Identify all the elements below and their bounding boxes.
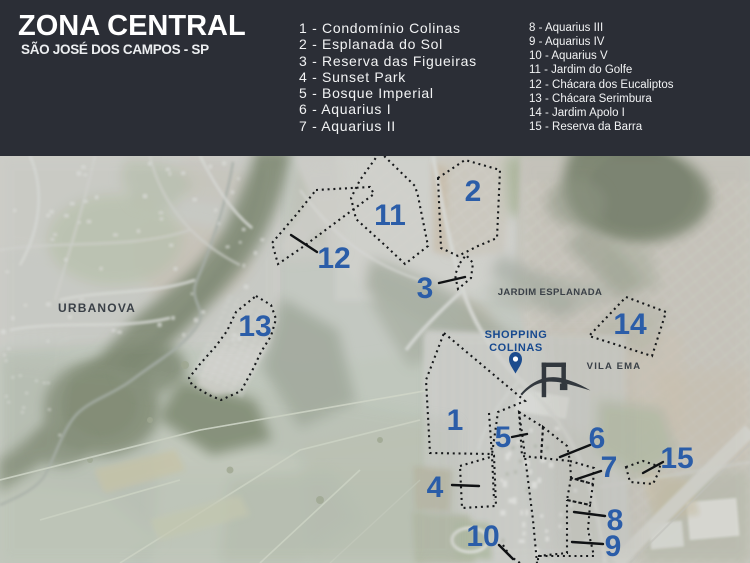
svg-text:URBANOVA: URBANOVA bbox=[58, 301, 136, 315]
svg-text:13: 13 bbox=[238, 310, 271, 343]
svg-text:2: 2 bbox=[465, 175, 482, 208]
svg-text:15: 15 bbox=[660, 442, 693, 475]
svg-text:9: 9 bbox=[605, 530, 622, 563]
svg-text:VILA EMA: VILA EMA bbox=[587, 361, 642, 372]
svg-text:SHOPPING: SHOPPING bbox=[485, 329, 548, 341]
svg-text:10: 10 bbox=[466, 520, 499, 553]
svg-text:7: 7 bbox=[601, 451, 618, 484]
svg-text:5: 5 bbox=[495, 421, 512, 454]
svg-text:12: 12 bbox=[317, 242, 350, 275]
svg-text:11: 11 bbox=[374, 199, 406, 232]
svg-text:4: 4 bbox=[427, 471, 444, 504]
svg-text:1: 1 bbox=[447, 404, 464, 437]
svg-text:14: 14 bbox=[613, 308, 647, 341]
svg-text:3: 3 bbox=[417, 272, 434, 305]
svg-text:JARDIM ESPLANADA: JARDIM ESPLANADA bbox=[498, 287, 603, 298]
